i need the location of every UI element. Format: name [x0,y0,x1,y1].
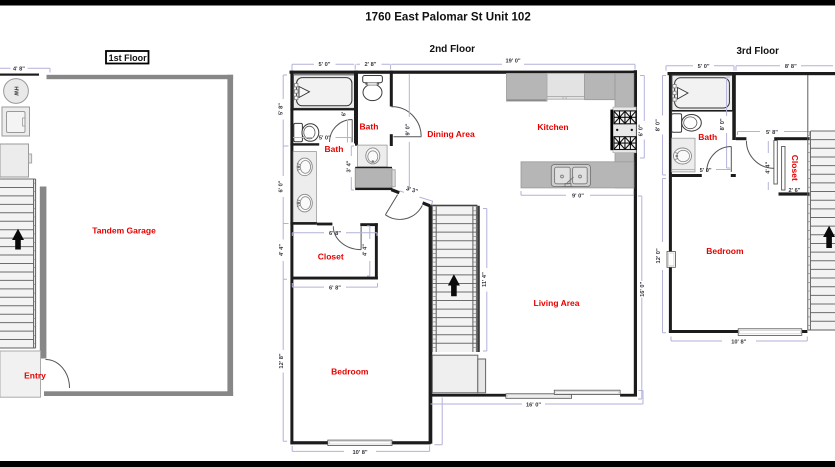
svg-text:5' 8": 5' 8" [278,103,284,115]
svg-text:5' 0": 5' 0" [319,136,331,142]
svg-text:19' 0": 19' 0" [505,59,520,65]
svg-text:6' 0": 6' 0" [638,124,644,136]
svg-text:6' 0": 6' 0" [278,180,284,192]
svg-text:5' 8": 5' 8" [766,130,778,136]
svg-text:6' 8": 6' 8" [329,285,341,291]
svg-text:Bath: Bath [698,132,717,142]
svg-text:4' 8": 4' 8" [13,67,25,73]
svg-text:9' 0": 9' 0" [572,194,584,200]
svg-text:Entry: Entry [24,370,46,380]
svg-text:HW: HW [13,86,19,96]
svg-text:3' 4": 3' 4" [347,160,353,172]
svg-text:3rd Floor: 3rd Floor [736,46,779,57]
svg-text:12' 0": 12' 0" [656,248,662,263]
svg-text:5' 0": 5' 0" [698,64,710,70]
svg-text:2nd Floor: 2nd Floor [430,44,476,55]
svg-text:4' 4": 4' 4" [279,244,285,256]
svg-text:2' 6": 2' 6" [789,188,801,194]
svg-text:8' 8": 8' 8" [785,64,797,70]
svg-text:6' 8": 6' 8" [329,231,341,237]
svg-text:4' 4": 4' 4" [766,162,772,174]
svg-text:5' 0": 5' 0" [319,62,331,68]
svg-text:Bath: Bath [325,144,344,154]
svg-text:2' 8": 2' 8" [365,62,377,68]
svg-text:16' 0": 16' 0" [526,402,541,408]
svg-text:8' 0": 8' 0" [720,118,726,130]
svg-text:1760 East Palomar St Unit 102: 1760 East Palomar St Unit 102 [365,10,531,23]
svg-text:Kitchen: Kitchen [537,122,568,132]
svg-text:Tandem Garage: Tandem Garage [92,226,156,236]
svg-text:10' 8": 10' 8" [731,339,746,345]
svg-text:Bath: Bath [360,121,379,131]
svg-text:8' 0": 8' 0" [656,119,662,131]
svg-text:Closet: Closet [790,155,800,181]
svg-text:1st Floor: 1st Floor [109,53,148,63]
svg-text:9' 0": 9' 0" [406,123,412,135]
svg-text:4' 4": 4' 4" [363,244,369,256]
svg-text:6': 6' [342,111,348,116]
svg-text:10' 8": 10' 8" [352,450,367,456]
svg-text:Living Area: Living Area [534,298,580,308]
svg-text:Closet: Closet [318,252,344,262]
svg-text:5' 0": 5' 0" [700,168,712,174]
svg-text:Dining Area: Dining Area [427,129,475,139]
svg-text:12' 8": 12' 8" [279,353,285,368]
svg-text:Bedroom: Bedroom [331,366,369,376]
svg-text:Bedroom: Bedroom [706,246,744,256]
svg-text:11' 4": 11' 4" [482,272,488,287]
svg-text:16' 0": 16' 0" [640,281,646,296]
